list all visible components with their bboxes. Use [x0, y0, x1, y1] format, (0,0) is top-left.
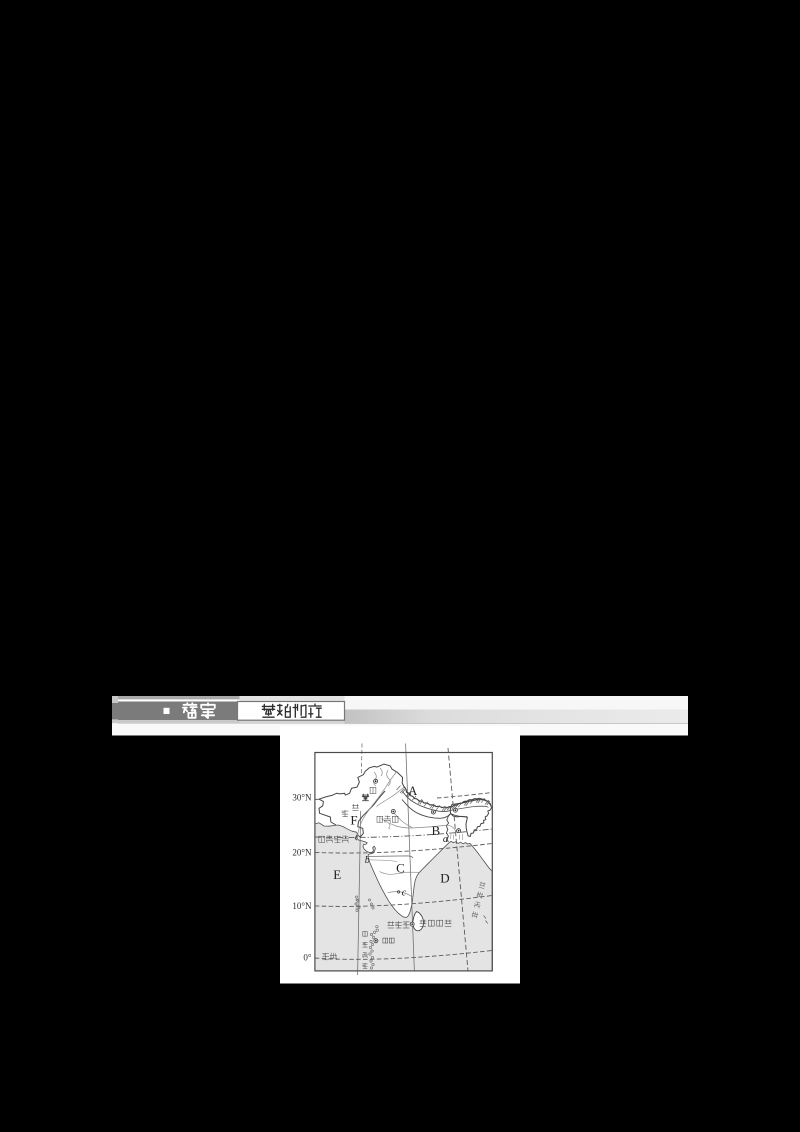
svg-text:D: D: [440, 871, 449, 886]
svg-text:10°N: 10°N: [292, 901, 312, 911]
svg-text:C: C: [396, 861, 405, 876]
svg-text:20°N: 20°N: [292, 848, 312, 858]
svg-text:B: B: [431, 823, 440, 838]
svg-text:a: a: [443, 834, 448, 845]
svg-text:0°: 0°: [303, 953, 312, 963]
svg-text:b: b: [365, 855, 370, 866]
svg-text:F: F: [350, 813, 357, 828]
svg-text:c: c: [402, 888, 407, 899]
svg-text:E: E: [333, 867, 341, 882]
svg-text:A: A: [408, 784, 417, 798]
svg-text:30°N: 30°N: [292, 793, 312, 803]
